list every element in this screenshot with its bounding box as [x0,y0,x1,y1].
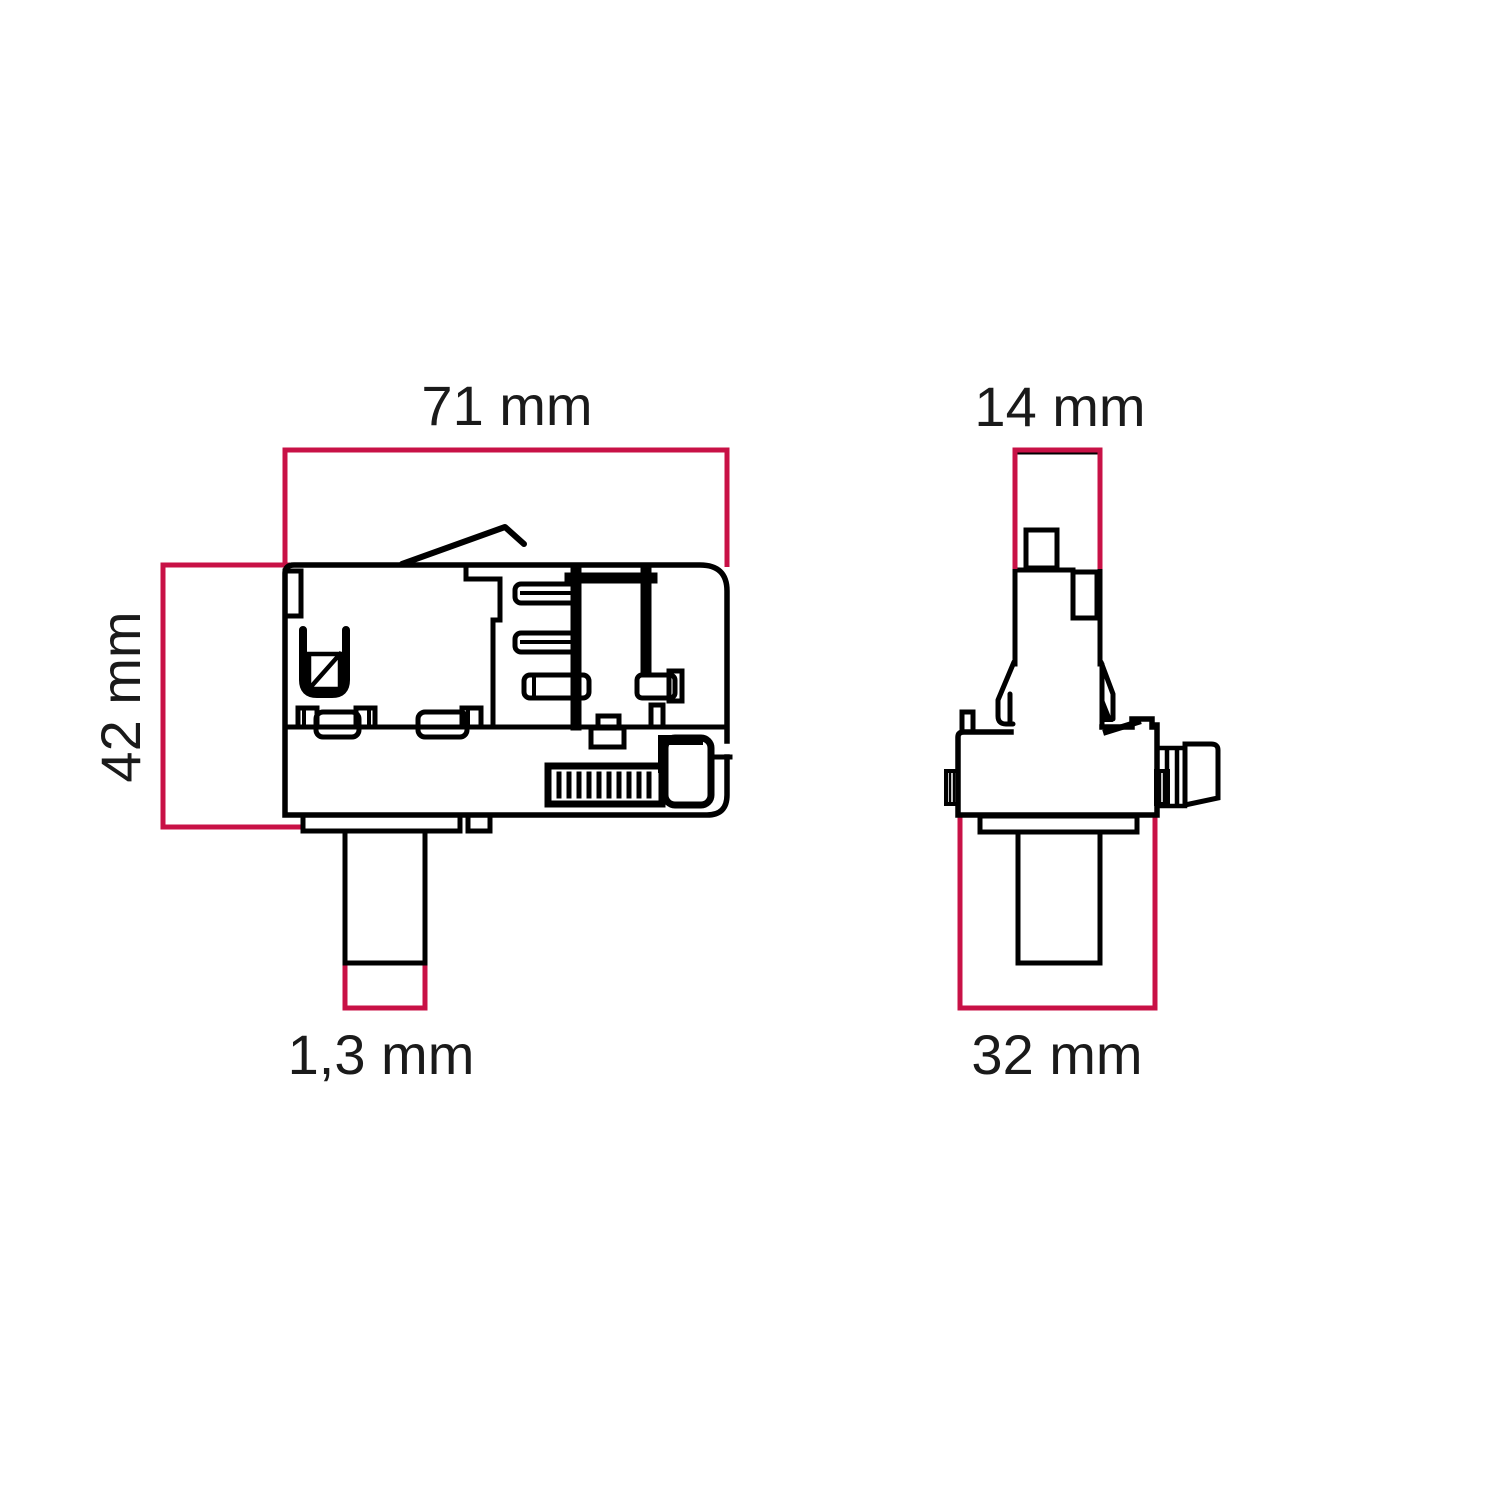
ribbed-wheel [548,766,662,804]
front-base-dimension-label: 32 mm [971,1027,1142,1083]
mounting-stem-side [345,831,425,963]
side-width-dimension-label: 71 mm [421,378,592,434]
front-top-nub [962,712,973,732]
dim-bracket-71mm [285,450,727,567]
side-connector-box [1158,744,1218,806]
plug-nub [1026,530,1057,568]
left-wing [998,662,1014,724]
bottom-flange [303,815,460,831]
u-clip-box [309,654,340,689]
center-tab [591,716,624,747]
plug-notch-box [1073,572,1097,618]
side-view-drawing [285,527,730,963]
technical-drawing [0,0,1500,1500]
side-door [665,738,711,805]
contact-block [515,573,682,727]
bottom-flange-tab [468,815,490,831]
mounting-stem-front [1018,832,1100,963]
front-body-outline [958,719,1157,815]
side-height-dimension-label: 42 mm [93,611,149,782]
dim-bracket-32mm [960,817,1155,1008]
left-ribbed-tab [946,771,958,804]
side-stem-dimension-label: 1,3 mm [288,1027,475,1083]
front-bottom-plate [980,816,1137,832]
front-width-dimension-label: 14 mm [974,379,1145,435]
top-notch-partition [466,567,500,726]
latch-tabs [298,708,481,737]
front-view-drawing [946,452,1218,963]
release-lever [402,527,524,564]
diagram-canvas: 71 mm 42 mm 1,3 mm 14 mm 32 mm [0,0,1500,1500]
dim-bracket-13mm [345,963,425,1008]
